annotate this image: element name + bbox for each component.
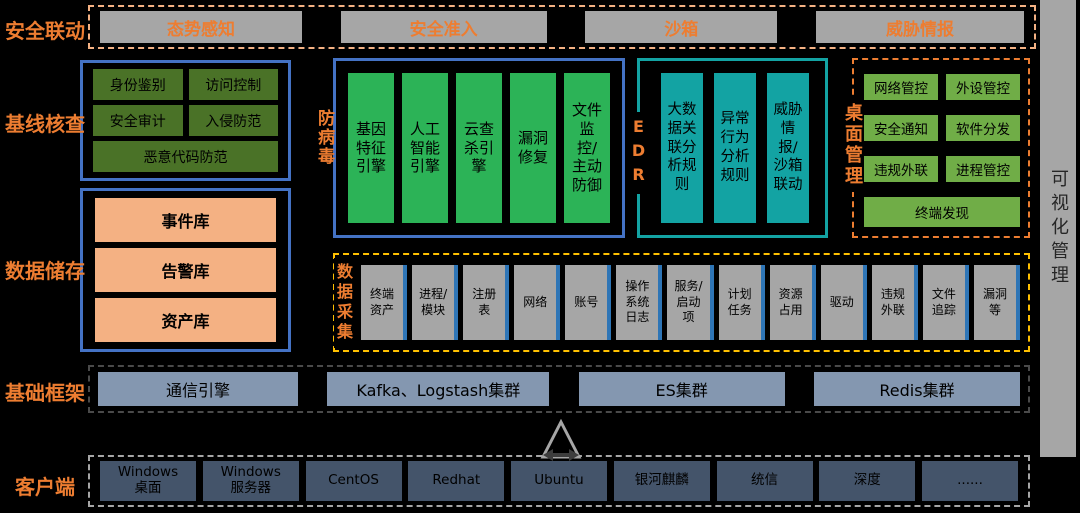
node-resource-usage: 资源占用 — [770, 265, 816, 340]
data-storage-panel: 事件库 告警库 资产库 — [80, 188, 291, 352]
node-event-db: 事件库 — [95, 198, 276, 242]
label-security-linkage: 安全联动 — [2, 15, 88, 44]
base-framework-panel: 通信引擎 Kafka、Logstash集群 ES集群 Redis集群 — [88, 365, 1030, 413]
node-file-trace: 文件追踪 — [923, 265, 969, 340]
label-base-framework: 基础框架 — [2, 377, 88, 406]
node-process-module: 进程/模块 — [412, 265, 458, 340]
node-file-monitor-defense: 文件监控/主动防御 — [564, 73, 610, 223]
node-kafka-logstash-cluster: Kafka、Logstash集群 — [327, 372, 549, 406]
node-network-control: 网络管控 — [864, 74, 938, 100]
node-alert-db: 告警库 — [95, 248, 276, 292]
node-intel-sandbox-linkage: 威胁情报/沙箱联动 — [767, 73, 809, 223]
node-kylin: 银河麒麟 — [614, 461, 710, 501]
node-vulns-etc: 漏洞等 — [974, 265, 1020, 340]
node-gene-signature-engine: 基因特征引擎 — [348, 73, 394, 223]
node-security-admission: 安全准入 — [341, 11, 547, 43]
node-scheduled-task: 计划任务 — [719, 265, 765, 340]
node-ubuntu: Ubuntu — [511, 461, 607, 501]
node-ai-engine: 人工智能引擎 — [402, 73, 448, 223]
node-threat-intel: 威胁情报 — [816, 11, 1024, 43]
baseline-check-panel: 身份鉴别 访问控制 安全审计 入侵防范 恶意代码防范 — [80, 60, 291, 181]
node-redis-cluster: Redis集群 — [814, 372, 1020, 406]
bidirectional-arrow-icon — [533, 419, 589, 463]
node-anomaly-behavior-rules: 异常行为分析规则 — [714, 73, 756, 223]
node-service-startup: 服务/启动项 — [667, 265, 713, 340]
label-visualization-management: 可视化管理 — [1045, 169, 1071, 289]
node-deepin: 深度 — [819, 461, 915, 501]
label-data-collection: 数据采集 — [334, 258, 352, 348]
node-access-control: 访问控制 — [189, 69, 279, 100]
node-cloud-scan-engine: 云查杀引擎 — [456, 73, 502, 223]
node-bigdata-correlation-rules: 大数据关联分析规则 — [661, 73, 703, 223]
node-process-control: 进程管控 — [946, 156, 1020, 182]
node-terminal-discovery: 终端发现 — [864, 197, 1020, 227]
node-situation-awareness: 态势感知 — [100, 11, 302, 43]
node-driver: 驱动 — [821, 265, 867, 340]
node-illegal-conn: 违规外联 — [872, 265, 918, 340]
node-redhat: Redhat — [408, 461, 504, 501]
security-linkage-panel: 态势感知 安全准入 沙箱 威胁情报 — [88, 5, 1036, 49]
node-registry: 注册表 — [463, 265, 509, 340]
node-asset-db: 资产库 — [95, 298, 276, 342]
node-windows-server: Windows服务器 — [203, 461, 299, 501]
label-edr: EDR — [629, 112, 647, 194]
node-security-notice: 安全通知 — [864, 115, 938, 141]
label-antivirus: 防病毒 — [314, 104, 333, 171]
node-network: 网络 — [514, 265, 560, 340]
label-baseline-check: 基线核查 — [2, 108, 88, 137]
node-centos: CentOS — [306, 461, 402, 501]
node-comm-engine: 通信引擎 — [98, 372, 298, 406]
node-malware-prevent: 恶意代码防范 — [93, 141, 278, 172]
node-software-dispatch: 软件分发 — [946, 115, 1020, 141]
node-sandbox: 沙箱 — [585, 11, 777, 43]
node-others: ...... — [922, 461, 1018, 501]
node-es-cluster: ES集群 — [579, 372, 785, 406]
node-security-audit: 安全审计 — [93, 105, 183, 136]
data-collection-panel: 终端资产 进程/模块 注册表 网络 账号 操作系统日志 服务/启动项 计划任务 … — [333, 253, 1030, 352]
label-data-storage: 数据储存 — [2, 255, 88, 284]
node-os-log: 操作系统日志 — [616, 265, 662, 340]
node-account: 账号 — [565, 265, 611, 340]
antivirus-panel: 基因特征引擎 人工智能引擎 云查杀引擎 漏洞修复 文件监控/主动防御 — [333, 58, 625, 238]
node-windows-desktop: Windows桌面 — [100, 461, 196, 501]
security-architecture-diagram: 安全联动 基线核查 数据储存 基础框架 客户端 态势感知 安全准入 沙箱 威胁情… — [0, 0, 1080, 513]
label-client: 客户端 — [2, 471, 88, 500]
node-peripheral-control: 外设管控 — [946, 74, 1020, 100]
node-illegal-outreach: 违规外联 — [864, 156, 938, 182]
label-desktop-management: 桌面管理 — [842, 98, 862, 192]
edr-panel: 大数据关联分析规则 异常行为分析规则 威胁情报/沙箱联动 — [637, 58, 828, 238]
desktop-management-panel: 网络管控 外设管控 安全通知 软件分发 违规外联 进程管控 终端发现 — [852, 58, 1030, 238]
node-intrusion-prevent: 入侵防范 — [189, 105, 279, 136]
node-terminal-asset: 终端资产 — [361, 265, 407, 340]
node-vuln-fix: 漏洞修复 — [510, 73, 556, 223]
node-identity-auth: 身份鉴别 — [93, 69, 183, 100]
node-uos: 统信 — [717, 461, 813, 501]
visualization-management-bar: 可视化管理 — [1040, 0, 1076, 457]
